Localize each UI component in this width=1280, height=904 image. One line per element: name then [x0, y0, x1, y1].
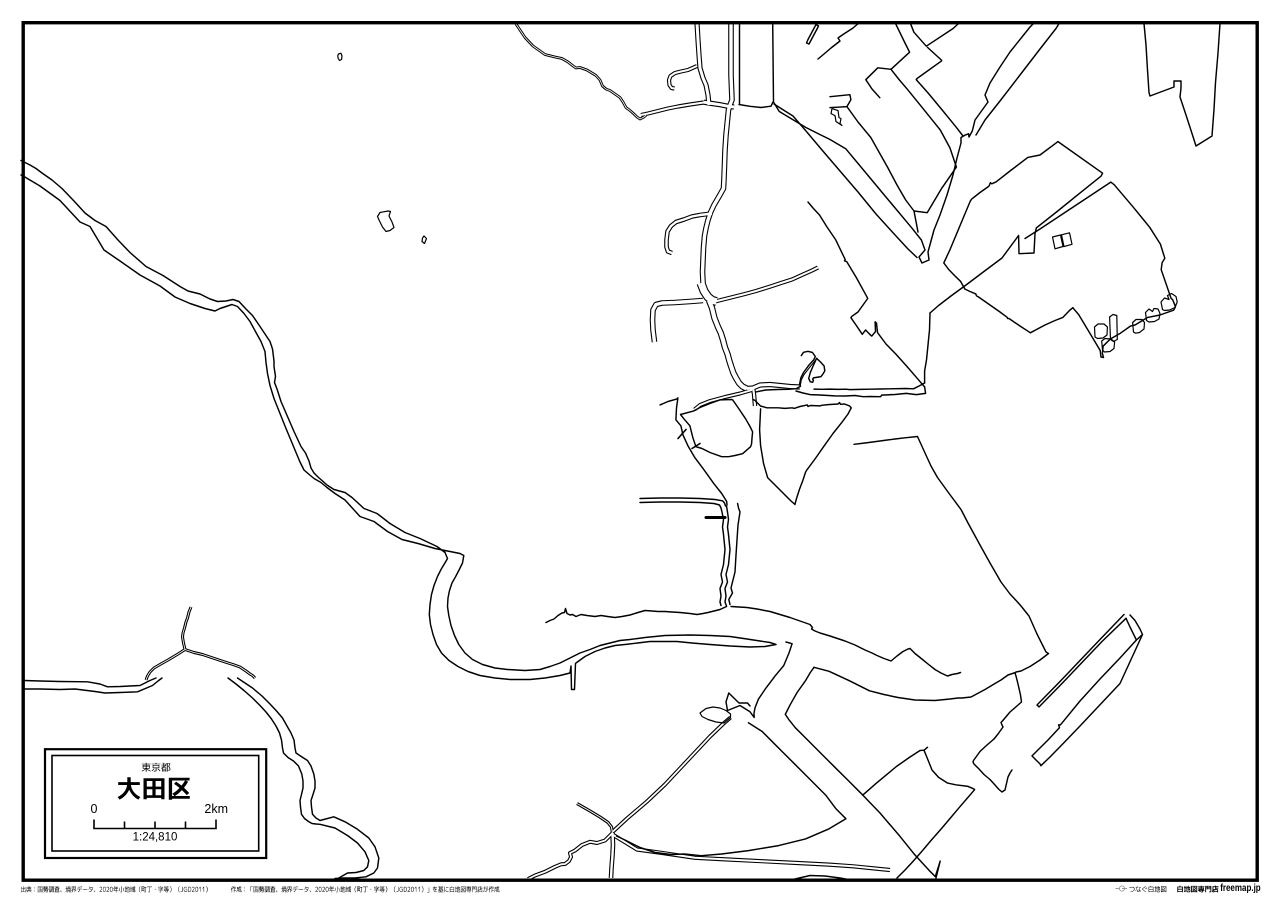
- svg-text:1:24,810: 1:24,810: [133, 832, 178, 844]
- svg-text:freemap.jp: freemap.jp: [1220, 882, 1261, 894]
- svg-text:2km: 2km: [204, 802, 228, 816]
- svg-text:0: 0: [91, 802, 98, 816]
